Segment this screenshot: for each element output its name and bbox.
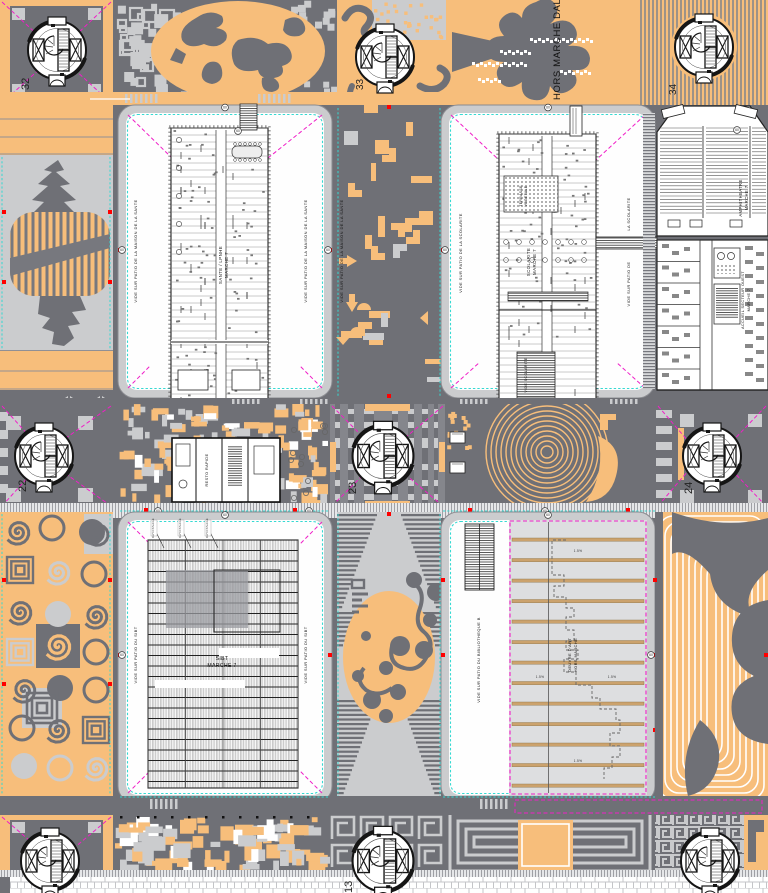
svg-text:60: 60 xyxy=(649,653,653,657)
svg-text:LA SCOLARITE: LA SCOLARITE xyxy=(626,197,631,230)
svg-text:13: 13 xyxy=(343,881,355,893)
svg-text:AMPHITHEATRE: AMPHITHEATRE xyxy=(738,179,743,216)
svg-text:VIDE SUR PATIO DE LA MAISON DE: VIDE SUR PATIO DE LA MAISON DE LA SANTE xyxy=(303,199,308,302)
svg-text:MARCHE 7: MARCHE 7 xyxy=(747,289,751,312)
svg-text:23: 23 xyxy=(347,482,359,494)
svg-text:34: 34 xyxy=(668,83,679,95)
svg-text:VIDE SUR PATIO DU SIBT: VIDE SUR PATIO DU SIBT xyxy=(133,626,138,683)
svg-text:HORS MARCHE: HORS MARCHE xyxy=(573,638,578,672)
svg-text:HORS MARCHE DALLE: HORS MARCHE DALLE xyxy=(552,0,563,100)
svg-text:VEGETALE: VEGETALE xyxy=(524,185,528,206)
svg-text:32: 32 xyxy=(20,78,32,90)
svg-text:RAYONNAGE: RAYONNAGE xyxy=(205,518,209,538)
svg-text:60: 60 xyxy=(223,106,227,110)
svg-text:60: 60 xyxy=(326,248,330,252)
svg-text:MARCHE 7: MARCHE 7 xyxy=(532,249,537,275)
svg-text:60: 60 xyxy=(735,128,739,132)
svg-text:1.5%: 1.5% xyxy=(536,675,544,679)
svg-text:22: 22 xyxy=(17,480,29,492)
svg-text:60: 60 xyxy=(443,248,447,252)
svg-text:VIDE SUR PATIO DE LA MAISON DE: VIDE SUR PATIO DE LA MAISON DE LA SANTE xyxy=(133,199,138,302)
svg-text:60: 60 xyxy=(236,129,240,133)
svg-text:VIDE SUR PATIO DE LA MAISON DE: VIDE SUR PATIO DE LA MAISON DE LA SANTE xyxy=(339,199,344,302)
svg-text:VIDE SCOLARITE: VIDE SCOLARITE xyxy=(524,357,528,393)
svg-text:60: 60 xyxy=(546,513,550,517)
svg-text:60: 60 xyxy=(120,248,124,252)
svg-text:60: 60 xyxy=(223,513,227,517)
svg-text:60: 60 xyxy=(120,653,124,657)
svg-text:OEUVRE D'ART: OEUVRE D'ART xyxy=(567,638,572,673)
svg-text:TERRASSE: TERRASSE xyxy=(519,185,523,207)
svg-text:1.5%: 1.5% xyxy=(574,549,582,553)
svg-text:MARCHE 7: MARCHE 7 xyxy=(744,185,749,210)
svg-text:VIDE SUR PATIO DU BIBLIOTHEQUE: VIDE SUR PATIO DU BIBLIOTHEQUE B xyxy=(476,617,481,703)
svg-text:VIDE SUR PATIO DE LA SCOLARITE: VIDE SUR PATIO DE LA SCOLARITE xyxy=(458,213,463,293)
svg-text:RAYONNAGE: RAYONNAGE xyxy=(151,518,155,538)
svg-text:RESTO RAPIDE: RESTO RAPIDE xyxy=(205,453,209,486)
svg-text:SIBT: SIBT xyxy=(216,656,229,662)
svg-text:RAYONNAGE: RAYONNAGE xyxy=(178,518,182,538)
svg-text:1.5%: 1.5% xyxy=(574,759,582,763)
svg-text:VIDE SUR PATIO DE: VIDE SUR PATIO DE xyxy=(626,262,631,307)
svg-text:24: 24 xyxy=(683,482,695,494)
svg-text:SCOLARITE: SCOLARITE xyxy=(526,248,531,277)
svg-text:60: 60 xyxy=(546,106,550,110)
svg-text:MARCHE 7: MARCHE 7 xyxy=(224,252,229,278)
svg-text:MARCHE 7: MARCHE 7 xyxy=(207,663,236,669)
svg-text:1.5%: 1.5% xyxy=(608,675,616,679)
svg-text:VIDE SUR PATIO DU SIBT: VIDE SUR PATIO DU SIBT xyxy=(303,626,308,683)
svg-text:ACCUEIL SECTEUR OUEST: ACCUEIL SECTEUR OUEST xyxy=(741,271,745,329)
svg-text:33: 33 xyxy=(355,78,366,90)
svg-text:SANTE / LPNHE: SANTE / LPNHE xyxy=(218,246,223,284)
